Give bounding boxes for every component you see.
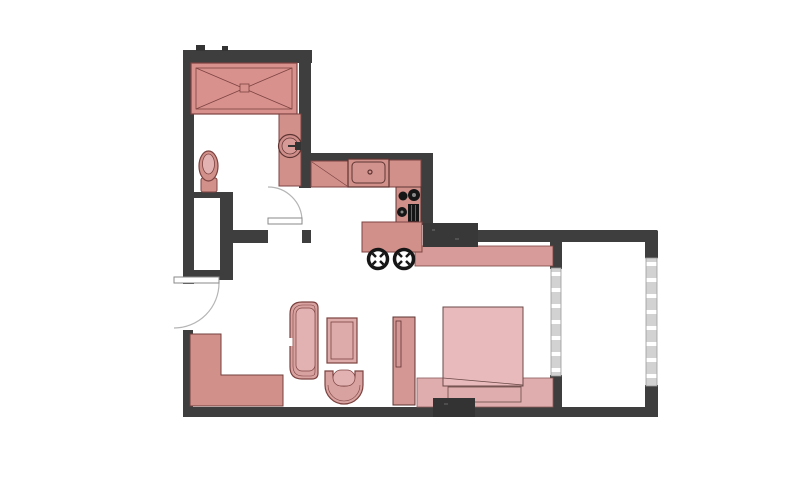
kitchen-stove — [396, 187, 421, 223]
toilet — [199, 151, 218, 192]
bedroom-balcony-window — [551, 268, 561, 376]
sofa — [289, 302, 319, 379]
bar-stool-right — [395, 250, 414, 269]
entry-door — [174, 277, 219, 328]
bar-stool-left — [369, 250, 388, 269]
coffee-table — [327, 318, 357, 363]
balcony-right-window — [646, 258, 657, 386]
wardrobe-closet — [191, 63, 297, 114]
bedroom-shelf — [393, 317, 415, 405]
floor-plan — [0, 0, 800, 480]
bottom-dark-block — [433, 398, 475, 417]
kitchen-island — [362, 222, 422, 252]
bathroom-door — [268, 187, 302, 224]
kitchen-sink — [348, 159, 389, 187]
floor-plan-svg — [0, 0, 800, 480]
bathroom-vanity — [279, 114, 302, 186]
desk-counter — [415, 246, 553, 266]
structural-column — [423, 223, 478, 247]
storage-bench — [190, 334, 283, 406]
bed — [443, 307, 523, 402]
lounge-chair — [325, 370, 363, 404]
